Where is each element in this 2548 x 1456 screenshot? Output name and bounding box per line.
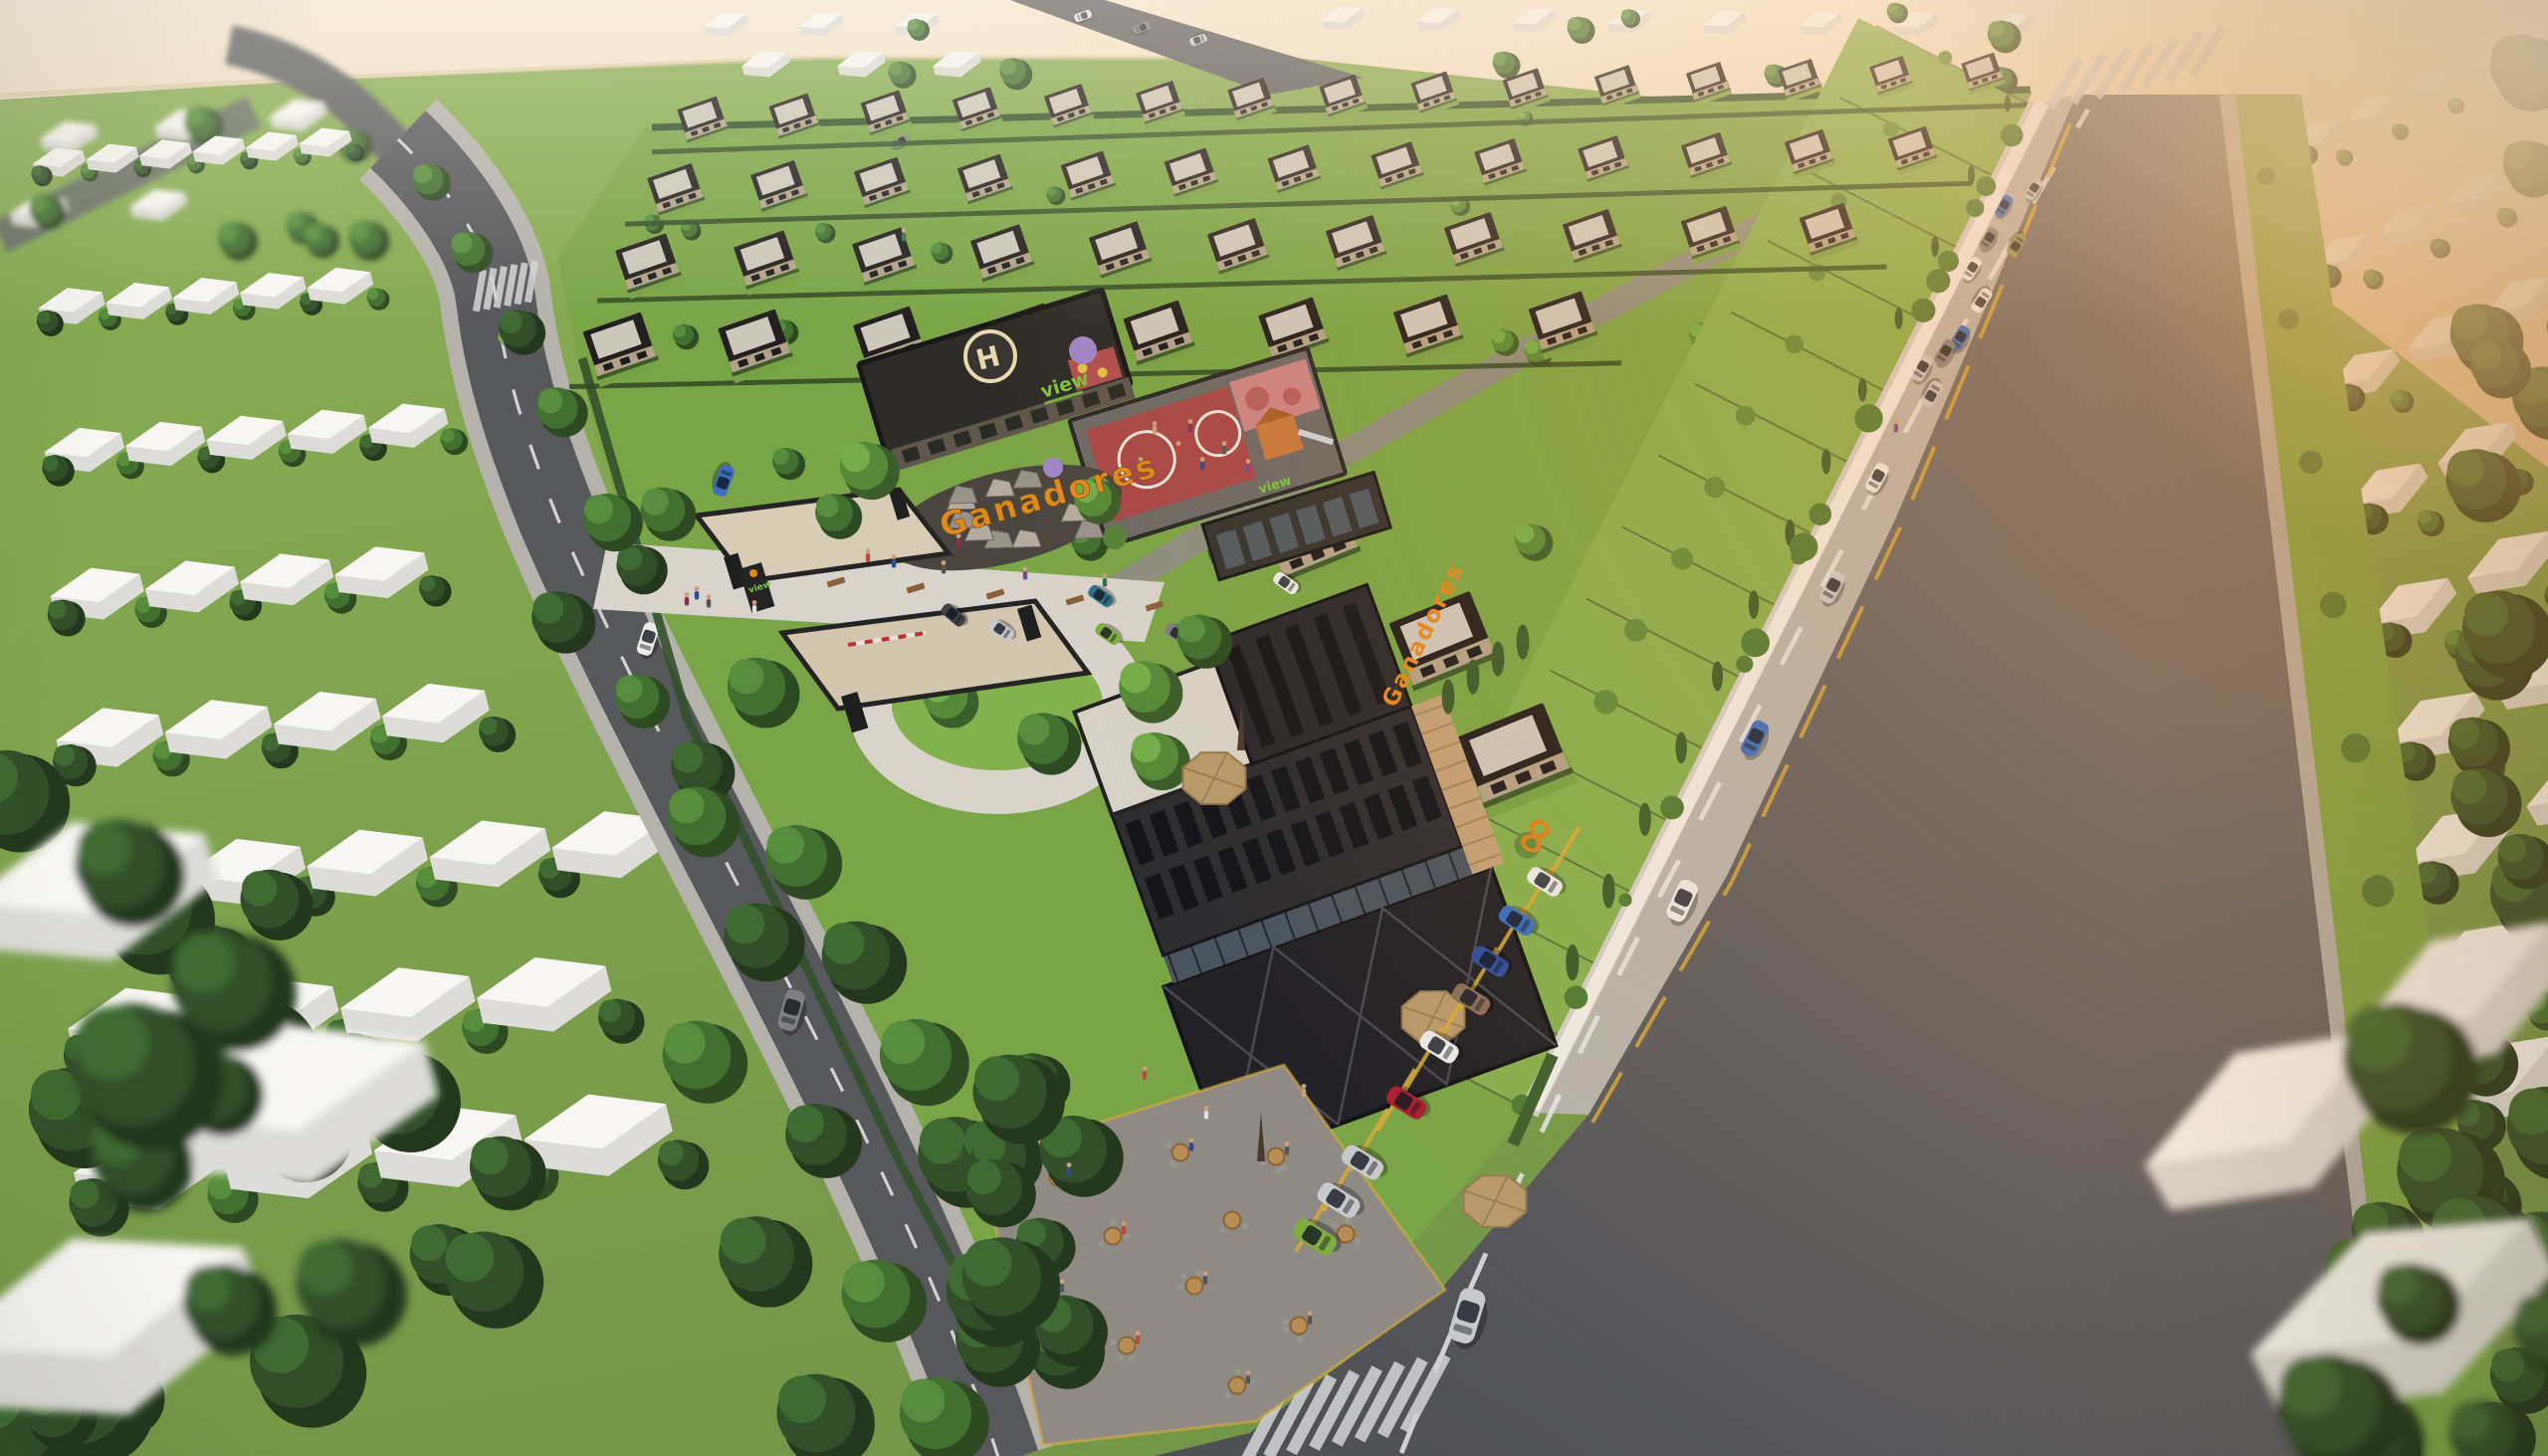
- vignette: [0, 0, 2548, 1456]
- scene-canvas: H Ganadores Ganadores view view view ∞: [0, 0, 2548, 1456]
- aerial-render-root: H Ganadores Ganadores view view view ∞: [0, 0, 2548, 1456]
